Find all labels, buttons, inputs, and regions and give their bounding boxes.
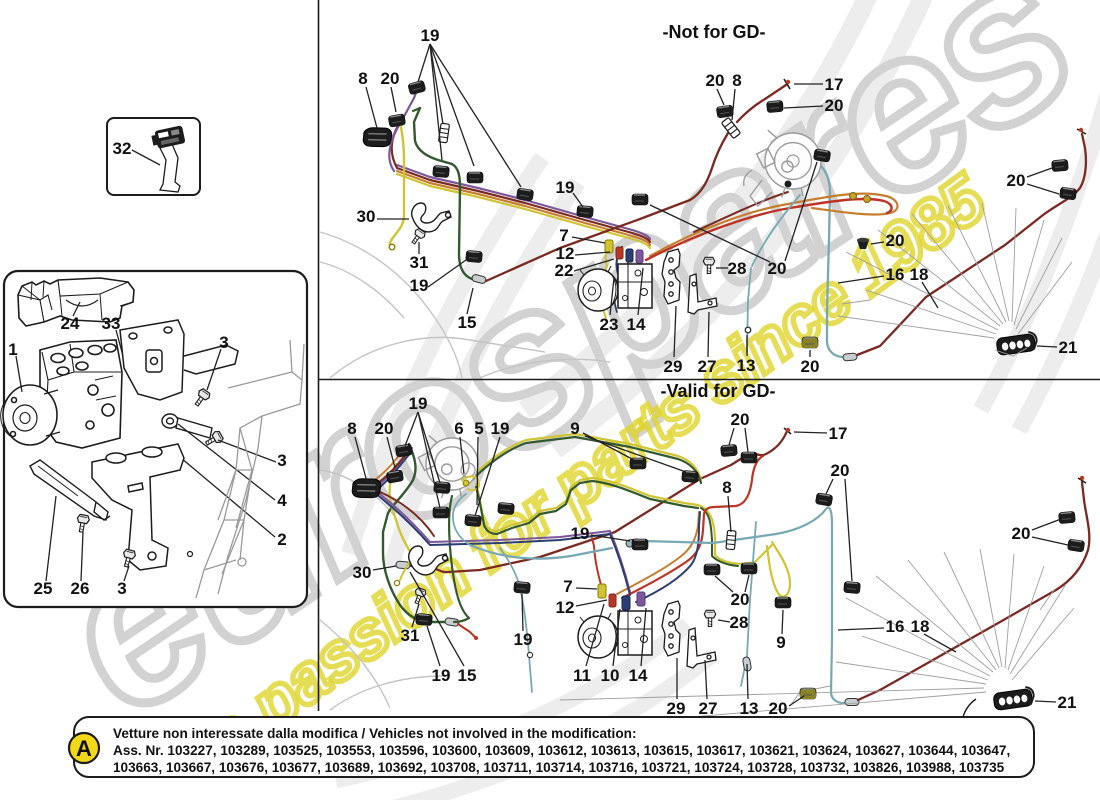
svg-text:-Valid for GD-: -Valid for GD- [660,381,775,401]
svg-text:20: 20 [801,357,820,376]
svg-text:20: 20 [1007,171,1026,190]
svg-text:3: 3 [117,579,126,598]
svg-text:8: 8 [722,478,731,497]
svg-text:26: 26 [71,579,90,598]
svg-text:30: 30 [353,563,372,582]
svg-text:103663, 103667, 103676, 103677: 103663, 103667, 103676, 103677, 103689, … [113,760,1005,775]
svg-text:30: 30 [357,207,376,226]
svg-text:18: 18 [910,265,929,284]
svg-text:15: 15 [458,666,477,685]
svg-text:Ass. Nr. 103227, 103289, 10352: Ass. Nr. 103227, 103289, 103525, 103553,… [113,743,1010,758]
svg-text:14: 14 [629,666,648,685]
svg-text:29: 29 [664,357,683,376]
svg-text:10: 10 [601,666,620,685]
svg-text:28: 28 [730,613,749,632]
svg-text:23: 23 [600,315,619,334]
svg-text:22: 22 [555,261,574,280]
svg-text:19: 19 [491,419,510,438]
svg-text:29: 29 [667,699,686,718]
svg-text:12: 12 [556,598,575,617]
svg-text:20: 20 [768,259,787,278]
svg-text:25: 25 [34,579,53,598]
svg-text:A: A [76,736,92,761]
svg-text:18: 18 [911,617,930,636]
svg-text:4: 4 [277,491,287,510]
svg-text:19: 19 [410,276,429,295]
svg-text:20: 20 [1012,524,1031,543]
svg-text:7: 7 [563,577,572,596]
svg-text:31: 31 [410,253,429,272]
svg-text:16: 16 [886,617,905,636]
svg-text:8: 8 [732,71,741,90]
svg-text:Vetture non interessate dalla: Vetture non interessate dalla modifica /… [113,726,636,741]
svg-text:16: 16 [886,265,905,284]
svg-text:19: 19 [571,524,590,543]
svg-text:9: 9 [776,633,785,652]
svg-text:8: 8 [358,69,367,88]
svg-text:20: 20 [731,590,750,609]
svg-text:24: 24 [61,314,80,333]
svg-text:19: 19 [514,630,533,649]
svg-text:20: 20 [381,69,400,88]
svg-text:28: 28 [728,259,747,278]
svg-text:31: 31 [401,626,420,645]
svg-text:7: 7 [559,226,568,245]
svg-text:19: 19 [432,666,451,685]
svg-text:20: 20 [886,231,905,250]
svg-text:17: 17 [829,424,848,443]
svg-text:20: 20 [375,419,394,438]
svg-text:6: 6 [454,419,463,438]
svg-text:3: 3 [277,451,286,470]
svg-text:27: 27 [698,357,717,376]
svg-text:19: 19 [409,394,428,413]
svg-text:32: 32 [113,139,132,158]
svg-text:21: 21 [1059,338,1078,357]
svg-text:20: 20 [825,96,844,115]
svg-text:33: 33 [102,314,121,333]
svg-text:11: 11 [573,666,591,685]
svg-text:21: 21 [1058,693,1077,712]
svg-text:17: 17 [825,75,844,94]
svg-text:19: 19 [556,178,575,197]
svg-text:27: 27 [699,699,718,718]
svg-text:19: 19 [421,26,440,45]
svg-text:13: 13 [737,356,756,375]
svg-text:-Not for GD-: -Not for GD- [663,22,766,42]
svg-text:5: 5 [474,419,483,438]
svg-text:15: 15 [458,313,477,332]
svg-text:20: 20 [769,699,788,718]
svg-text:13: 13 [740,699,759,718]
svg-text:20: 20 [706,71,725,90]
svg-text:8: 8 [347,419,356,438]
svg-text:9: 9 [570,419,579,438]
svg-text:20: 20 [831,461,850,480]
svg-text:20: 20 [731,410,750,429]
svg-text:2: 2 [277,530,286,549]
svg-text:14: 14 [627,315,646,334]
